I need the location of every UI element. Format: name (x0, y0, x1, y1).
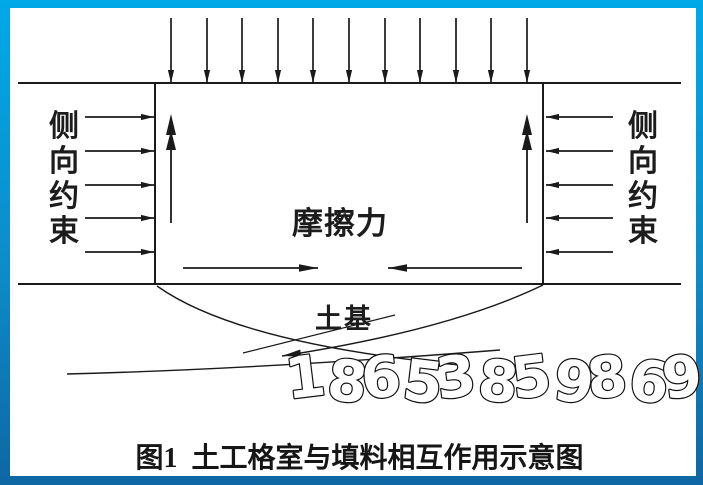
load-arrows (171, 18, 527, 83)
figure-caption: 图1 土工格室与填料相互作用示意图 (8, 436, 703, 476)
left-confinement-arrows (85, 117, 154, 252)
soil-foundation-label: 土基 (315, 297, 373, 336)
right-confinement-label: 侧向约束 (626, 109, 660, 249)
left-confinement-label: 侧向约束 (47, 109, 81, 249)
watermark-text: 18653859869 (282, 343, 703, 418)
uplift-arrow-right (522, 114, 532, 223)
friction-label: 摩擦力 (292, 198, 388, 243)
image-frame: 18653859869 侧向约束 侧向约束 摩擦力 土基 图1 土工格室与填料相… (0, 0, 703, 485)
right-confinement-arrows (546, 117, 613, 252)
uplift-arrow-left (166, 114, 176, 223)
